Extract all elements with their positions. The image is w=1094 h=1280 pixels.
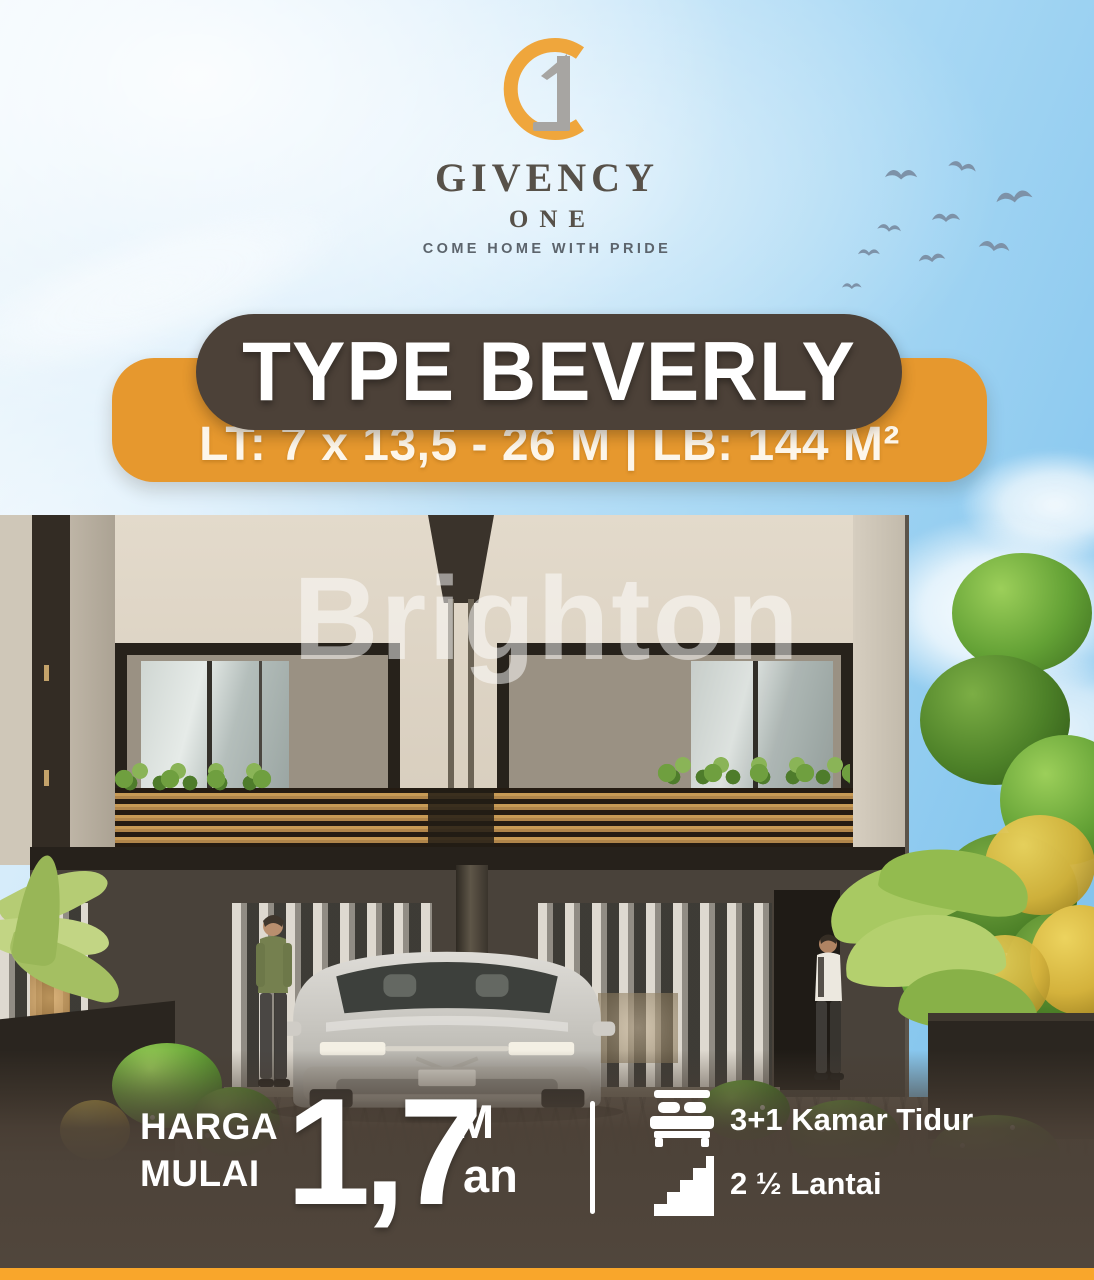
feature-floors-label: 2 ½ Lantai [730, 1168, 882, 1199]
price-unit-bottom: an [463, 1152, 518, 1199]
balcony-plants-left [112, 757, 272, 799]
bed-icon [646, 1090, 718, 1148]
wall-light-2 [44, 770, 49, 786]
price-label: HARGA MULAI [140, 1103, 278, 1198]
brand-header: GIVENCY ONE COME HOME WITH PRIDE [0, 30, 1094, 257]
type-pill: TYPE BEVERLY [196, 314, 902, 430]
balcony-plants-right [655, 751, 850, 795]
price-label-line1: HARGA [140, 1103, 278, 1150]
givency-one-logo-icon [483, 30, 611, 148]
type-title: TYPE BEVERLY [242, 330, 856, 413]
slat-band-centre-shadow [428, 788, 494, 847]
brighton-watermark: Brighton [0, 560, 1094, 678]
poster: GIVENCY ONE COME HOME WITH PRIDE LT: 7 x… [0, 0, 1094, 1280]
vertical-divider [590, 1101, 595, 1214]
price-value: 1,7 [286, 1076, 476, 1228]
brand-sub: ONE [0, 207, 1094, 232]
brand-name: GIVENCY [0, 158, 1094, 198]
specs-text: LT: 7 x 13,5 - 26 M | LB: 144 M² [199, 421, 900, 482]
bottom-accent-strip [0, 1268, 1094, 1280]
agave-plant [0, 815, 138, 1025]
feature-bedrooms-label: 3+1 Kamar Tidur [730, 1104, 973, 1135]
price-unit-top: M [455, 1098, 494, 1145]
price-label-line2: MULAI [140, 1150, 278, 1197]
brand-tagline: COME HOME WITH PRIDE [0, 241, 1094, 257]
stairs-icon [652, 1156, 716, 1216]
